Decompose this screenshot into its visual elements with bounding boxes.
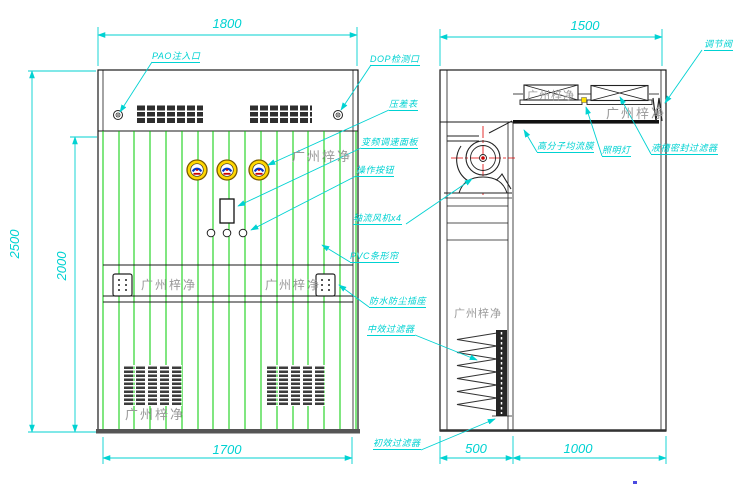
cad-drawing-page: 1800 1500 1700 500 1000 2500 2000 PAO注入口… bbox=[0, 0, 750, 492]
dop-port-icon bbox=[334, 111, 343, 120]
control-buttons-icon bbox=[207, 229, 247, 237]
socket-left-icon bbox=[113, 274, 132, 296]
label-dop-port: DOP检测口 bbox=[370, 54, 420, 66]
label-axial-fans: 轴流风机x4 bbox=[353, 213, 402, 225]
pressure-gauge-dial bbox=[249, 160, 269, 180]
dim-opening-height: 2000 bbox=[55, 246, 68, 286]
watermark-front-band-right: 广州梓净 bbox=[265, 276, 321, 293]
label-flow-membrane: 高分子均流膜 bbox=[537, 141, 594, 153]
label-socket: 防水防尘插座 bbox=[369, 296, 426, 308]
top-louver-left bbox=[137, 104, 203, 123]
watermark-side-filter: 广州梓净 bbox=[527, 87, 575, 103]
return-grille-right bbox=[267, 365, 325, 406]
dim-front-bottom-width: 1700 bbox=[197, 443, 257, 456]
watermark-front-top: 广州梓净 bbox=[292, 146, 352, 165]
watermark-front-band-left: 广州梓净 bbox=[141, 276, 197, 293]
label-control-buttons: 操作按钮 bbox=[356, 165, 394, 177]
pao-port-icon bbox=[114, 111, 123, 120]
label-vfd-panel: 变频调速面板 bbox=[361, 137, 418, 149]
watermark-front-bottom: 广州梓净 bbox=[125, 404, 185, 423]
label-damper: 调节阀 bbox=[704, 39, 733, 51]
label-pvc-curtain: PVC条形帘 bbox=[350, 251, 399, 263]
dim-side-top-width: 1500 bbox=[555, 19, 615, 32]
dim-front-top-width: 1800 bbox=[197, 17, 257, 30]
watermark-side-top: 广州梓净 bbox=[606, 103, 666, 122]
lamp-icon bbox=[582, 98, 587, 103]
pressure-gauge-dial bbox=[217, 160, 237, 180]
watermark-side-column: 广州梓净 bbox=[454, 305, 502, 321]
dim-side-front-depth: 1000 bbox=[548, 442, 608, 455]
stray-dot bbox=[633, 481, 637, 484]
pressure-gauge-dial bbox=[187, 160, 207, 180]
label-sealed-filter: 液槽密封过滤器 bbox=[651, 143, 718, 155]
side-view bbox=[440, 70, 666, 431]
vfd-panel-icon bbox=[220, 199, 234, 223]
return-grille-left bbox=[124, 365, 182, 406]
dim-side-rear-depth: 500 bbox=[446, 442, 506, 455]
label-pressure-gauge: 压差表 bbox=[389, 99, 418, 111]
top-louver-right bbox=[250, 104, 312, 123]
label-primary-filter: 初效过滤器 bbox=[373, 438, 421, 450]
label-lamp: 照明灯 bbox=[602, 145, 631, 157]
drawing-linework bbox=[0, 0, 750, 492]
dim-overall-height: 2500 bbox=[8, 224, 21, 264]
label-medium-filter: 中效过滤器 bbox=[367, 324, 415, 336]
label-pao-port: PAO注入口 bbox=[152, 51, 200, 63]
